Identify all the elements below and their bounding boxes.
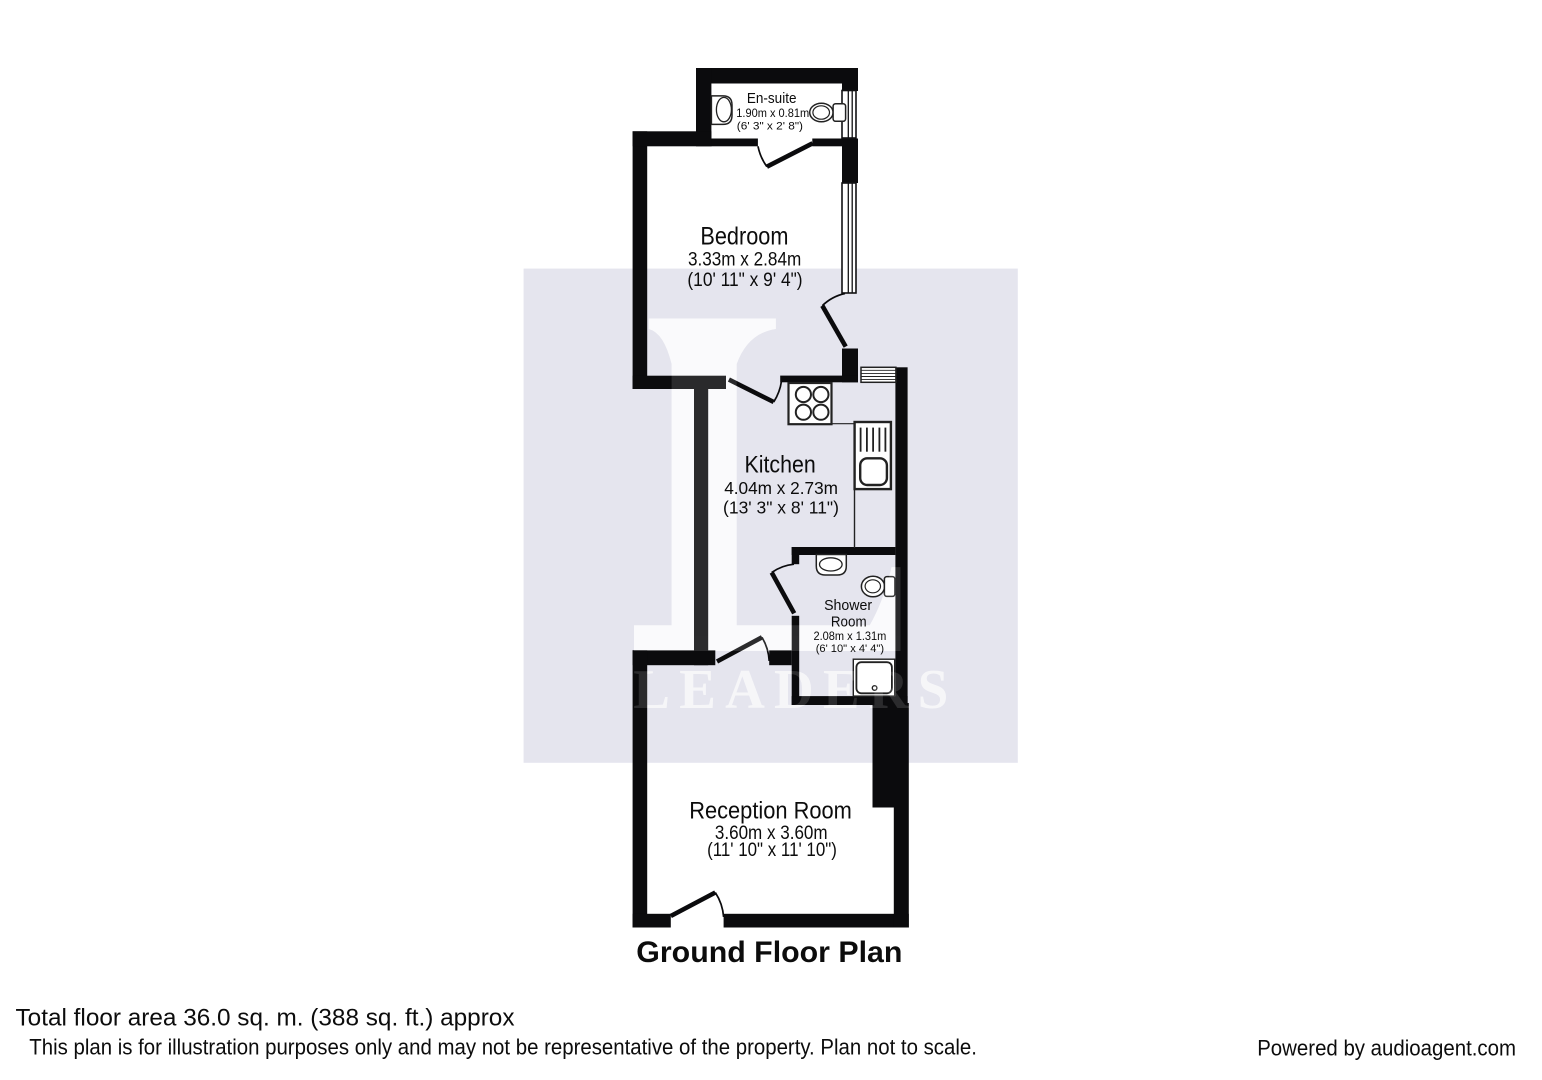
- svg-text:Ground Floor Plan: Ground Floor Plan: [636, 936, 902, 969]
- svg-text:This plan is for illustration: This plan is for illustration purposes o…: [29, 1035, 977, 1060]
- svg-text:LEADERS: LEADERS: [633, 659, 957, 721]
- svg-text:Kitchen: Kitchen: [745, 453, 816, 479]
- svg-text:Bedroom: Bedroom: [700, 223, 788, 251]
- svg-text:1.90m x 0.81m: 1.90m x 0.81m: [736, 106, 809, 120]
- svg-text:(11' 10" x 11' 10"): (11' 10" x 11' 10"): [707, 839, 837, 861]
- svg-text:(6' 3" x 2' 8"): (6' 3" x 2' 8"): [737, 121, 803, 133]
- svg-text:4.04m x 2.73m: 4.04m x 2.73m: [724, 478, 838, 498]
- svg-text:2.08m x 1.31m: 2.08m x 1.31m: [813, 629, 886, 643]
- svg-text:(10' 11" x 9' 4"): (10' 11" x 9' 4"): [687, 269, 802, 291]
- svg-text:(13' 3" x 8' 11"): (13' 3" x 8' 11"): [723, 498, 839, 518]
- svg-text:Powered by audioagent.com: Powered by audioagent.com: [1257, 1036, 1516, 1061]
- svg-text:Total floor area 36.0 sq. m. (: Total floor area 36.0 sq. m. (388 sq. ft…: [16, 1005, 515, 1032]
- svg-text:Reception Room: Reception Room: [689, 798, 852, 825]
- svg-text:En-suite: En-suite: [747, 91, 797, 107]
- svg-text:Shower: Shower: [824, 597, 872, 614]
- svg-text:3.33m x 2.84m: 3.33m x 2.84m: [688, 249, 801, 271]
- svg-text:Room: Room: [831, 613, 867, 630]
- svg-text:(6' 10" x 4' 4"): (6' 10" x 4' 4"): [816, 643, 885, 655]
